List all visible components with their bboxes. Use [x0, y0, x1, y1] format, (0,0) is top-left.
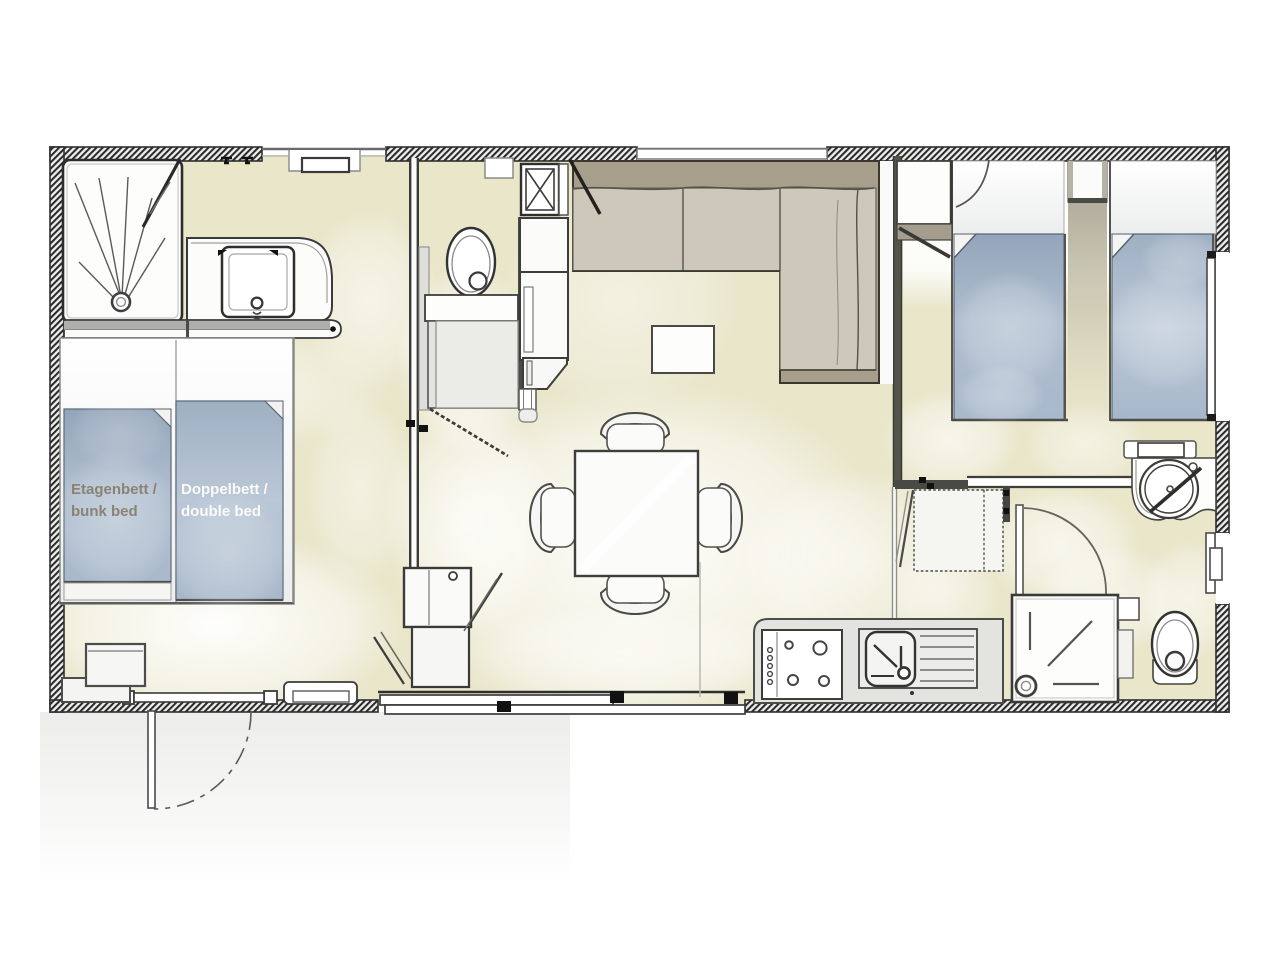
svg-text:Etagenbett /: Etagenbett / — [71, 481, 158, 498]
svg-text:double bed: double bed — [181, 503, 261, 520]
svg-text:bunk bed: bunk bed — [71, 503, 138, 520]
svg-text:Doppelbett /: Doppelbett / — [181, 481, 268, 498]
